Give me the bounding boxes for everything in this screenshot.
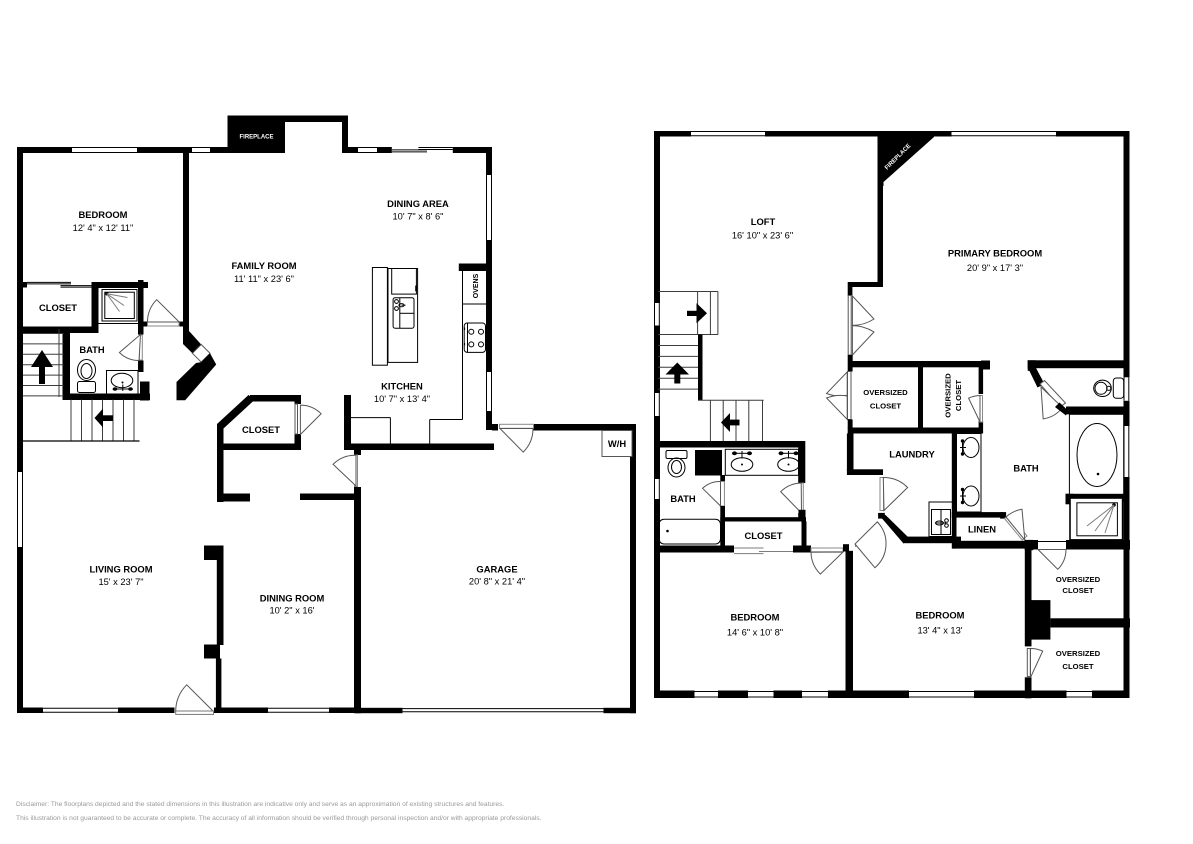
svg-text:BEDROOM: BEDROOM (731, 611, 780, 622)
svg-text:BEDROOM: BEDROOM (916, 609, 965, 620)
svg-text:OVERSIZED: OVERSIZED (863, 388, 908, 397)
svg-text:PRIMARY BEDROOM: PRIMARY BEDROOM (948, 247, 1042, 258)
svg-text:DINING ROOM: DINING ROOM (260, 592, 325, 603)
svg-text:15' x 23' 7": 15' x 23' 7" (98, 577, 143, 587)
svg-text:This illustration is not guara: This illustration is not guaranteed to b… (16, 815, 542, 822)
svg-text:13' 4" x 13': 13' 4" x 13' (917, 625, 962, 635)
svg-text:14' 6" x 10' 8": 14' 6" x 10' 8" (727, 627, 783, 637)
svg-text:CLOSET: CLOSET (242, 424, 280, 435)
svg-text:OVERSIZED: OVERSIZED (1056, 575, 1101, 584)
svg-text:BATH: BATH (670, 493, 696, 504)
svg-text:10' 7" x 8' 6": 10' 7" x 8' 6" (393, 212, 444, 222)
svg-text:OVERSIZED: OVERSIZED (944, 373, 953, 418)
svg-text:20' 9" x 17' 3": 20' 9" x 17' 3" (967, 263, 1023, 273)
svg-text:CLOSET: CLOSET (954, 380, 963, 411)
svg-text:KITCHEN: KITCHEN (381, 380, 423, 391)
svg-text:12' 4" x 12' 11": 12' 4" x 12' 11" (73, 223, 134, 233)
svg-text:FAMILY ROOM: FAMILY ROOM (231, 260, 296, 271)
svg-text:LOFT: LOFT (751, 216, 776, 227)
svg-text:LAUNDRY: LAUNDRY (889, 448, 935, 459)
svg-text:CLOSET: CLOSET (1062, 586, 1093, 595)
svg-text:CLOSET: CLOSET (870, 402, 901, 411)
svg-text:10' 7" x 13' 4": 10' 7" x 13' 4" (374, 394, 430, 404)
svg-text:CLOSET: CLOSET (39, 302, 77, 313)
svg-text:CLOSET: CLOSET (1062, 662, 1093, 671)
svg-text:10' 2" x 16': 10' 2" x 16' (269, 606, 314, 616)
svg-text:OVERSIZED: OVERSIZED (1056, 649, 1101, 658)
svg-text:BATH: BATH (1013, 462, 1039, 473)
svg-text:DINING AREA: DINING AREA (387, 198, 449, 209)
svg-text:16' 10" x 23' 6": 16' 10" x 23' 6" (732, 231, 793, 241)
svg-text:BEDROOM: BEDROOM (79, 209, 128, 220)
svg-text:GARAGE: GARAGE (476, 563, 517, 574)
svg-text:20' 8" x 21' 4": 20' 8" x 21' 4" (469, 577, 525, 587)
svg-text:FIREPLACE: FIREPLACE (239, 135, 273, 141)
svg-text:BATH: BATH (79, 344, 105, 355)
svg-text:W/H: W/H (608, 438, 626, 449)
svg-text:OVENS: OVENS (473, 273, 480, 298)
svg-text:Disclaimer: The floorplans dep: Disclaimer: The floorplans depicted and … (16, 801, 504, 808)
svg-text:LIVING ROOM: LIVING ROOM (89, 563, 152, 574)
svg-text:11' 11" x 23' 6": 11' 11" x 23' 6" (234, 274, 294, 284)
svg-text:LINEN: LINEN (968, 523, 996, 534)
svg-text:CLOSET: CLOSET (744, 530, 782, 541)
